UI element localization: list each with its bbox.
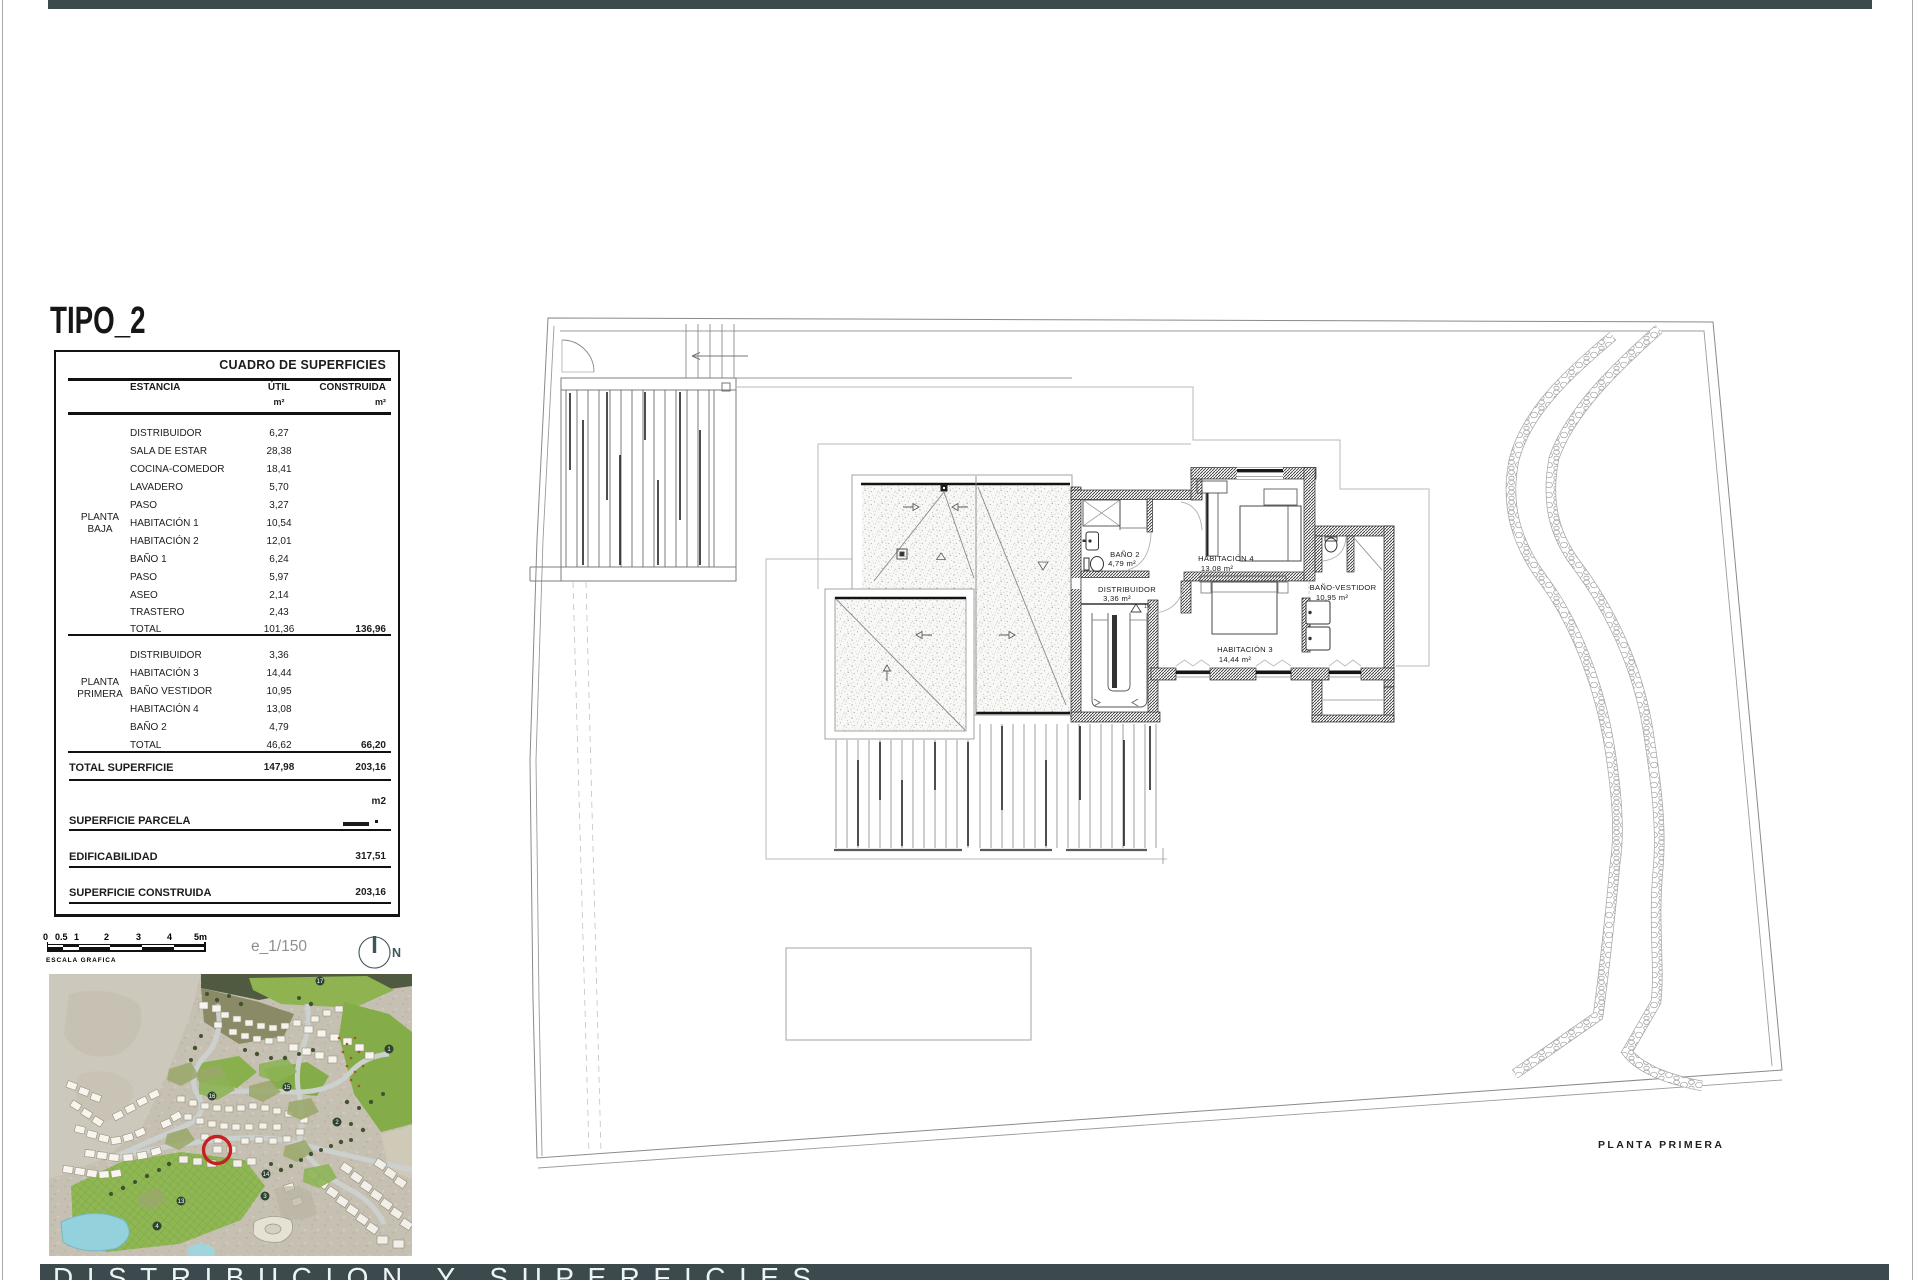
svg-text:4,79 m²: 4,79 m² [1108, 559, 1136, 568]
svg-text:BAÑO-VESTIDOR: BAÑO-VESTIDOR [1310, 583, 1377, 592]
svg-text:16: 16 [1144, 604, 1150, 610]
svg-text:14,44 m²: 14,44 m² [1219, 655, 1252, 664]
svg-text:DISTRIBUIDOR: DISTRIBUIDOR [1098, 585, 1156, 594]
svg-text:BAÑO 2: BAÑO 2 [1110, 550, 1140, 559]
svg-text:10,95 m²: 10,95 m² [1316, 593, 1349, 602]
svg-text:HABITACIÓN 4: HABITACIÓN 4 [1198, 554, 1254, 563]
svg-text:HABITACIÓN 3: HABITACIÓN 3 [1217, 645, 1273, 654]
svg-text:3,36 m²: 3,36 m² [1103, 594, 1131, 603]
svg-text:13,08 m²: 13,08 m² [1201, 564, 1234, 573]
svg-text:PLANTA PRIMERA: PLANTA PRIMERA [1598, 1139, 1724, 1151]
